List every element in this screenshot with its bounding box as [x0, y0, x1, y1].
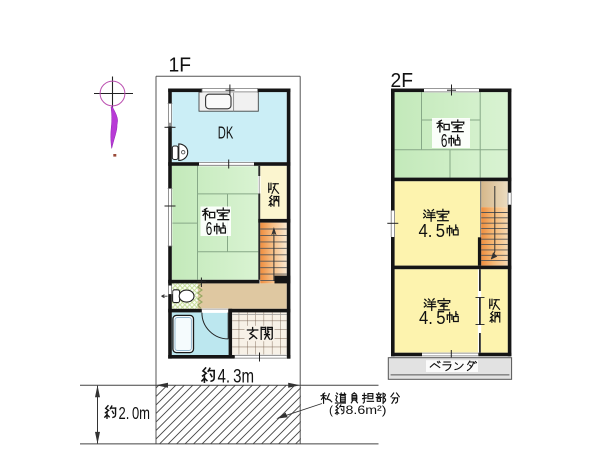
svg-text:6: 6: [441, 131, 448, 151]
svg-text:8.6m²): 8.6m²): [346, 403, 387, 417]
svg-text:4. 3m: 4. 3m: [218, 366, 255, 387]
svg-text:1F: 1F: [169, 55, 192, 77]
svg-text:4. 5: 4. 5: [419, 221, 446, 241]
svg-text:6: 6: [206, 219, 213, 239]
svg-text:DK: DK: [218, 123, 234, 143]
svg-text:4. 5: 4. 5: [419, 308, 446, 328]
svg-text:2. 0m: 2. 0m: [119, 403, 151, 423]
svg-text:(: (: [329, 403, 333, 417]
